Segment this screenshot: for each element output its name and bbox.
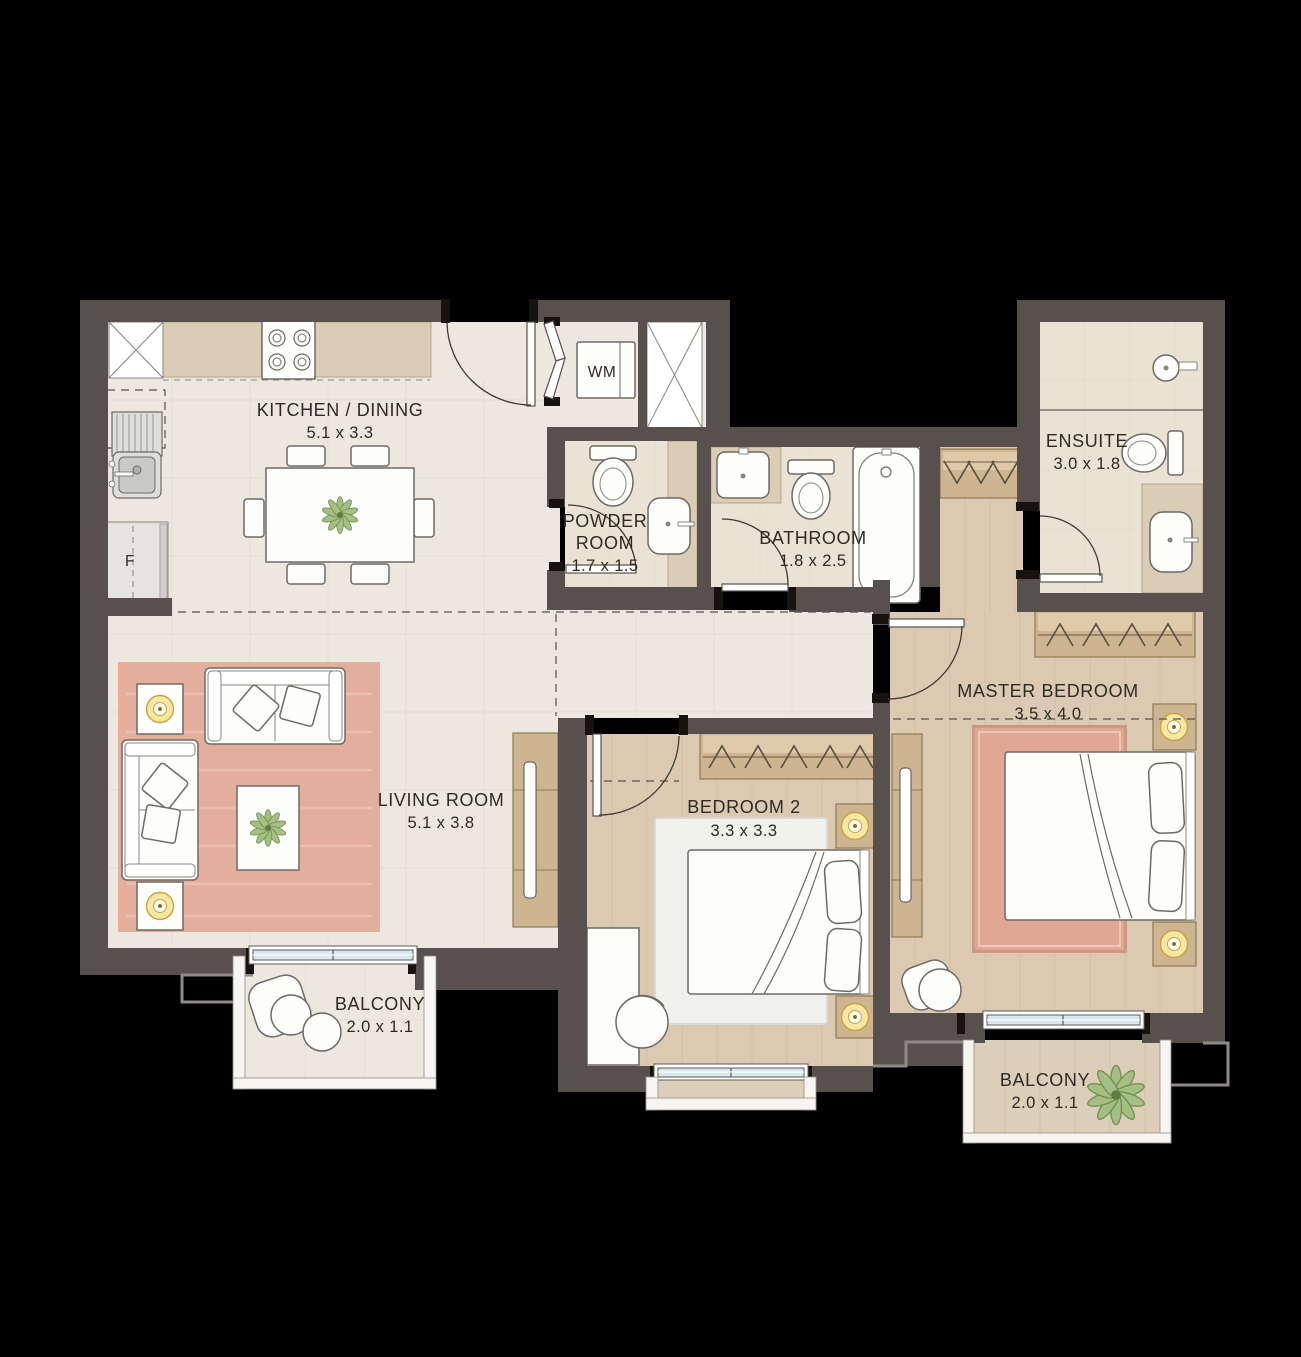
washing-machine: WM [577,342,635,398]
master-nightstand-top [1153,704,1196,750]
bedroom2-nightstand-bottom [836,996,874,1038]
master-nightstand-bottom [1153,922,1196,966]
powder-room-dims: 1.7 x 1.5 [572,557,639,575]
ensuite-sink [1150,512,1198,572]
washing-machine-label: WM [588,364,617,381]
bed-pillow [1148,840,1185,912]
powder-toilet [590,446,636,506]
ensuite-label: ENSUITE [1046,431,1128,451]
bathroom-label: BATHROOM [759,528,866,548]
fridge: F [98,522,168,602]
balcony-left-dims: 2.0 x 1.1 [347,1018,414,1036]
balcony-left-label: BALCONY [335,994,425,1014]
coffee-table [237,786,299,870]
ensuite-dims: 3.0 x 1.8 [1054,455,1121,473]
bed-pillow [1148,762,1185,834]
living-room-label: LIVING ROOM [378,790,505,810]
bathroom-dims: 1.8 x 2.5 [780,552,847,570]
stove [262,320,315,379]
master-bedroom-label: MASTER BEDROOM [957,681,1138,701]
powder-sink [648,498,694,554]
bedroom2-chair [616,996,668,1048]
shaft-box-2 [647,322,702,428]
dining-chair [244,499,264,537]
kitchen-dining-dims: 5.1 x 3.3 [307,424,374,442]
balcony-left-table [303,1013,341,1051]
sofa-vertical [122,740,198,880]
master-bedroom-dims: 3.5 x 4.0 [1015,705,1082,723]
side-table-lamp-bottom [137,882,183,930]
floorplan-canvas: DW F [0,0,1301,1357]
floorplan-drawing: DW F [0,0,1301,1357]
powder-room-label-1: POWDER [563,511,648,531]
bedroom2-wardrobe [700,732,876,779]
kitchen-dining-label: KITCHEN / DINING [257,400,424,420]
dining-chair [351,446,389,466]
bedroom2-bed [688,850,869,994]
dining-chair [414,499,434,537]
master-wardrobe [1035,610,1195,657]
sofa-horizontal [205,668,345,744]
master-bed [1005,752,1195,920]
bathtub [853,447,920,603]
dining-chair [287,446,325,466]
master-tv-dresser [892,734,922,937]
shaft-box [109,322,163,378]
master-bedroom-window [983,1011,1144,1029]
fridge-label: F [125,553,135,570]
bed-pillow [824,928,862,992]
hallway-floor [558,610,873,718]
balcony-right-label: BALCONY [1000,1070,1090,1090]
balcony-right-dims: 2.0 x 1.1 [1012,1094,1079,1112]
dining-chair [351,564,389,584]
bedroom2-dims: 3.3 x 3.3 [711,822,778,840]
bedroom2-nightstand-top [836,804,874,848]
kitchen-sink [109,412,162,498]
tv-unit [513,733,558,927]
bathroom-sink [717,448,769,498]
dining-chair [287,564,325,584]
living-room-dims: 5.1 x 3.8 [408,814,475,832]
sofa-pillow [141,804,180,843]
side-table-lamp-top [137,684,183,734]
bedroom2-label: BEDROOM 2 [687,797,800,817]
ensuite-toilet [1122,431,1183,475]
tv-screen [524,762,536,898]
bed-pillow [824,860,862,924]
powder-room-label-2: ROOM [576,533,634,553]
living-room-window [249,946,417,964]
dressing-wardrobe [940,449,1023,498]
bedroom2-window [654,1064,808,1080]
